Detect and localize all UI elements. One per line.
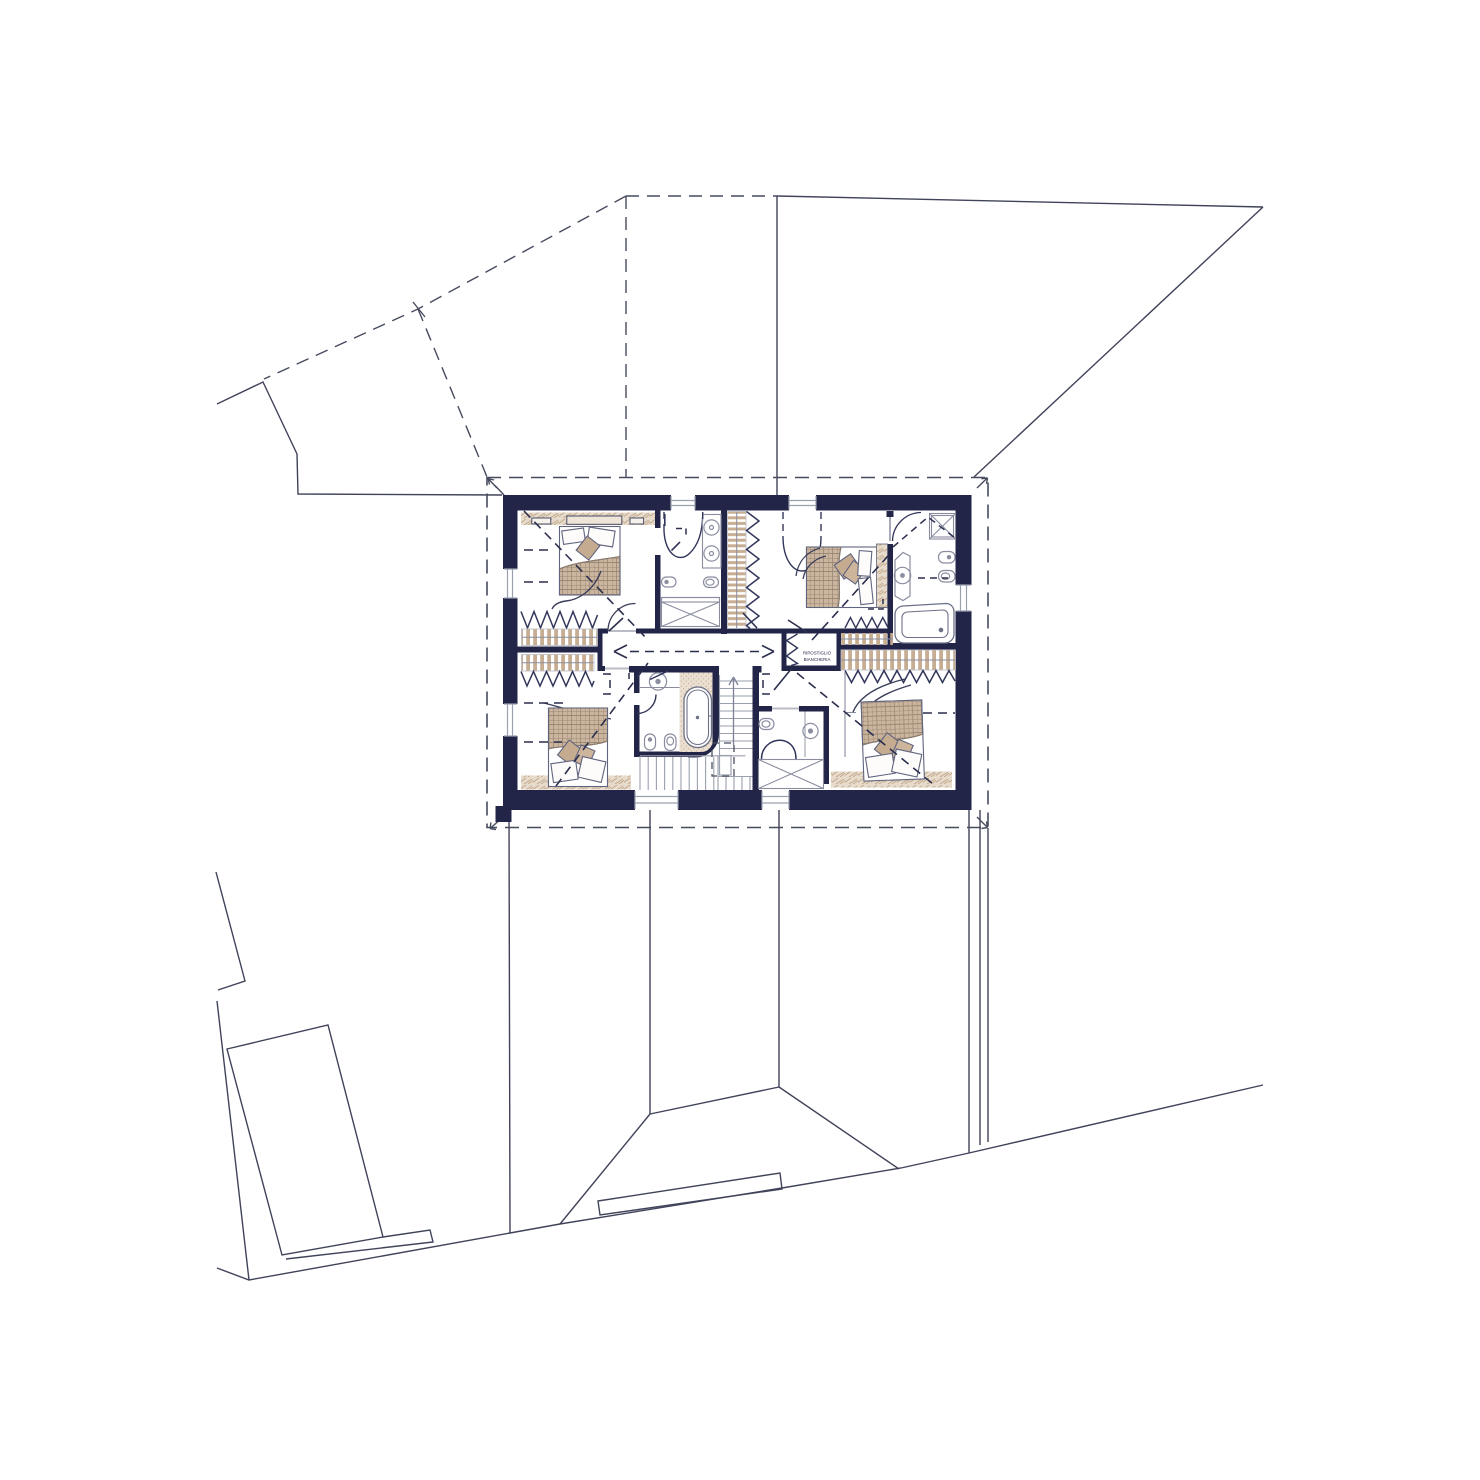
svg-text:BIANCHERIA: BIANCHERIA — [804, 657, 831, 662]
svg-text:RIPOSTIGLIO: RIPOSTIGLIO — [803, 651, 832, 656]
